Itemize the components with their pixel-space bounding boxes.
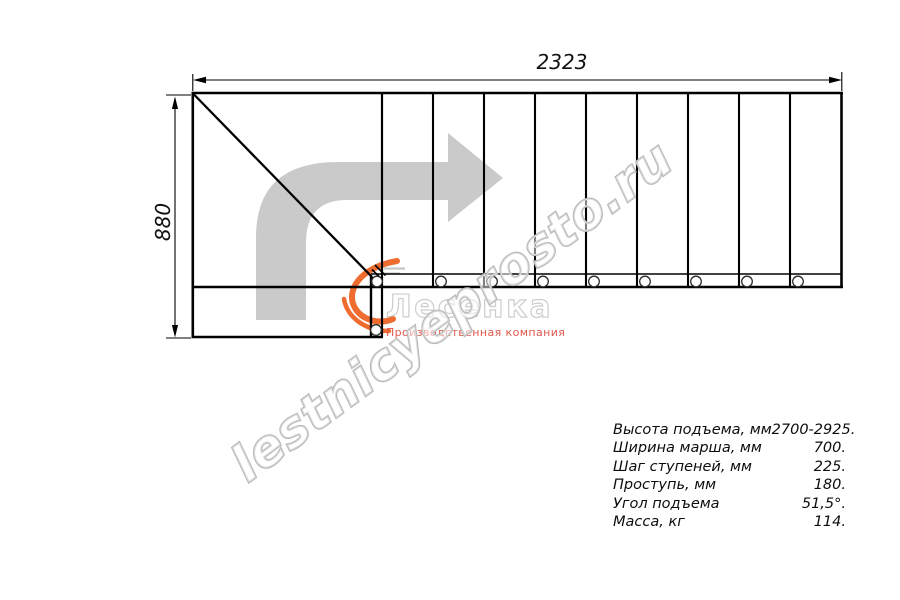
spec-label: Угол подъема (613, 495, 720, 513)
spec-value: 700. (814, 439, 846, 457)
spec-label: Шаг ступеней, мм (613, 458, 752, 476)
logo-speed-lines (384, 269, 405, 274)
dimension-left: 880 (151, 95, 191, 338)
spec-value: 51,5°. (802, 495, 846, 513)
stair-drawing-page: Лесенка Производственная компания (0, 0, 900, 600)
spec-row-march-width: Ширина марша, мм 700. (613, 439, 846, 457)
spec-row-step-pitch: Шаг ступеней, мм 225. (613, 458, 846, 476)
spec-label: Ширина марша, мм (613, 439, 762, 457)
spec-label: Масса, кг (613, 513, 685, 531)
spec-value: 2700-2925. (772, 421, 856, 439)
spec-row-mass: Масса, кг 114. (613, 513, 846, 531)
specs-table: Высота подъема, мм 2700-2925. Ширина мар… (613, 421, 846, 531)
spec-label: Высота подъема, мм (613, 421, 772, 439)
spec-value: 180. (814, 476, 846, 494)
spec-value: 225. (814, 458, 846, 476)
dimension-top: 2323 (193, 50, 842, 91)
left-dimension-label: 880 (151, 203, 175, 241)
spec-row-height: Высота подъема, мм 2700-2925. (613, 421, 846, 439)
spec-row-tread: Проступь, мм 180. (613, 476, 846, 494)
spec-row-angle: Угол подъема 51,5°. (613, 495, 846, 513)
spec-value: 114. (814, 513, 846, 531)
spec-label: Проступь, мм (613, 476, 716, 494)
top-dimension-label: 2323 (537, 50, 588, 74)
